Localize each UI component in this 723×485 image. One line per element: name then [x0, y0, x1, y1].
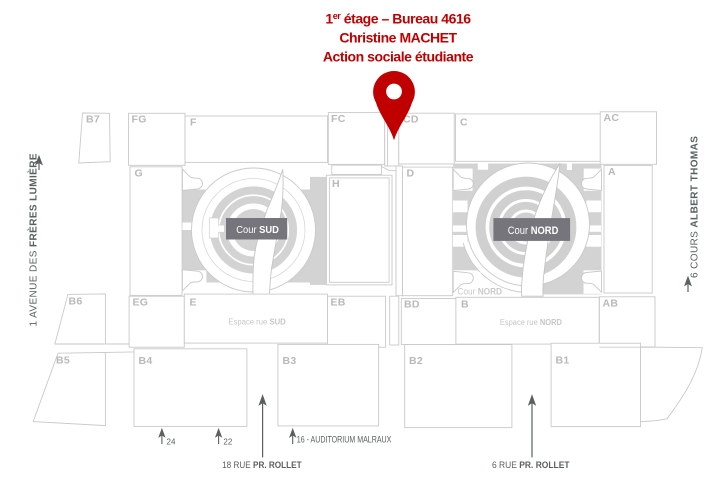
svg-text:B7: B7	[86, 114, 100, 126]
svg-text:H: H	[332, 178, 340, 190]
svg-text:A: A	[608, 166, 616, 178]
svg-text:B5: B5	[56, 355, 70, 367]
svg-text:1 AVENUE DES FRÈRES LUMIÈRE: 1 AVENUE DES FRÈRES LUMIÈRE	[27, 153, 40, 326]
svg-text:22: 22	[223, 438, 232, 447]
svg-text:Christine MACHET: Christine MACHET	[339, 29, 457, 45]
svg-text:6 COURS ALBERT THOMAS: 6 COURS ALBERT THOMAS	[690, 136, 701, 278]
svg-text:F: F	[190, 117, 197, 129]
svg-text:B2: B2	[409, 355, 423, 367]
svg-text:E: E	[190, 297, 197, 309]
svg-text:C: C	[460, 117, 468, 129]
svg-text:G: G	[135, 168, 143, 180]
svg-text:B1: B1	[556, 355, 570, 367]
svg-text:16 - AUDITORIUM MALRAUX: 16 - AUDITORIUM MALRAUX	[297, 434, 392, 444]
svg-text:EG: EG	[133, 297, 149, 309]
svg-text:EB: EB	[331, 297, 346, 309]
svg-text:Espace rue SUD: Espace rue SUD	[228, 316, 285, 326]
svg-text:B: B	[461, 299, 469, 311]
svg-text:D: D	[407, 168, 415, 180]
svg-text:AC: AC	[604, 112, 620, 124]
svg-text:Espace rue NORD: Espace rue NORD	[500, 317, 562, 327]
svg-text:1er étage – Bureau 4616: 1er étage – Bureau 4616	[325, 11, 471, 27]
svg-text:24: 24	[167, 438, 176, 447]
svg-text:6 RUE PR. ROLLET: 6 RUE PR. ROLLET	[492, 460, 570, 471]
svg-text:FC: FC	[331, 113, 346, 125]
svg-text:B3: B3	[283, 355, 297, 367]
svg-text:Cour SUD: Cour SUD	[236, 224, 279, 236]
svg-text:Cour NORD: Cour NORD	[508, 225, 559, 237]
svg-text:18 RUE PR. ROLLET: 18 RUE PR. ROLLET	[222, 460, 302, 471]
svg-text:B6: B6	[69, 296, 83, 308]
svg-text:Cour NORD: Cour NORD	[458, 286, 503, 296]
svg-text:FG: FG	[132, 114, 147, 126]
svg-text:Action sociale étudiante: Action sociale étudiante	[323, 48, 474, 64]
svg-text:BD: BD	[404, 299, 420, 311]
svg-text:AB: AB	[603, 298, 619, 310]
svg-text:B4: B4	[139, 355, 153, 367]
